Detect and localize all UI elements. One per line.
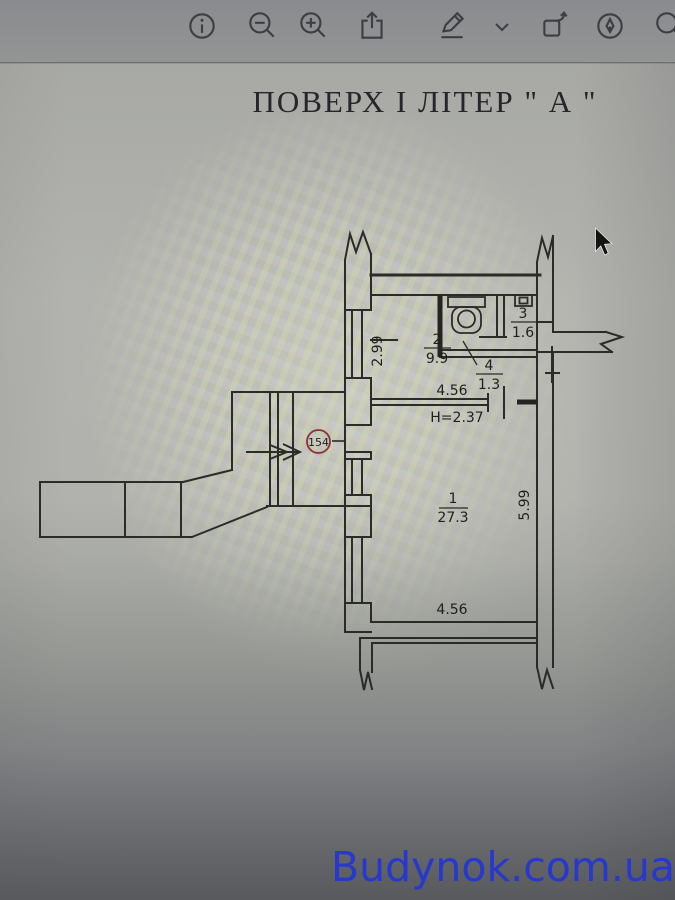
dim-upper-width: 4.56 xyxy=(436,383,467,399)
mouse-cursor-icon xyxy=(596,228,612,255)
room1-area: 27.3 xyxy=(437,510,468,526)
info-icon[interactable] xyxy=(185,9,219,43)
apartment-number: 154 xyxy=(308,436,329,449)
page-title: ПОВЕРХ І ЛІТЕР " А " xyxy=(252,84,597,119)
window-symbols xyxy=(352,310,362,603)
room2-number: 2 xyxy=(433,332,442,348)
preview-toolbar xyxy=(0,0,675,63)
zoom-out-icon[interactable] xyxy=(245,9,279,43)
search-icon[interactable] xyxy=(653,9,675,43)
wall-break-top-right xyxy=(537,236,553,262)
dim-lower-width: 4.56 xyxy=(436,602,467,618)
preview-window: { "app": { "toolbar": { "icons": [ {"nam… xyxy=(0,0,675,900)
rotate-icon[interactable] xyxy=(538,9,572,43)
markup-pencil-icon[interactable] xyxy=(435,9,469,43)
dim-left-wall: 2.99 xyxy=(370,335,386,366)
room4-leader-line xyxy=(463,341,477,365)
floor-plan: ПОВЕРХ І ЛІТЕР " А " xyxy=(0,0,675,900)
room4-number: 4 xyxy=(485,358,494,374)
room1-number: 1 xyxy=(449,491,458,507)
share-icon[interactable] xyxy=(355,9,389,43)
entrance-arrow xyxy=(246,444,300,460)
dim-right-wall: 5.99 xyxy=(517,489,533,520)
watermark: Budynok.com.ua xyxy=(331,845,675,890)
wall-break-top-left xyxy=(345,232,371,260)
zoom-in-icon[interactable] xyxy=(296,9,330,43)
vestibule-and-stairs xyxy=(40,392,371,537)
highlight-icon[interactable] xyxy=(593,9,627,43)
room3-number: 3 xyxy=(519,306,528,322)
wall-break-right xyxy=(537,322,622,352)
toilet-tank xyxy=(448,297,485,307)
markup-expand-chevron-icon[interactable] xyxy=(487,9,521,43)
room4-area: 1.3 xyxy=(478,377,500,393)
room2-area: 9.9 xyxy=(426,351,448,367)
wall-break-bottom-right xyxy=(537,667,553,689)
wall-break-bottom-left xyxy=(360,670,372,690)
dimension-labels: 4.56 H=2.37 4.56 2.99 5.99 xyxy=(370,335,533,618)
ceiling-height-label: H=2.37 xyxy=(430,410,483,426)
room3-area: 1.6 xyxy=(512,325,534,341)
plan-walls xyxy=(40,232,622,690)
apartment-number-badge: 154 xyxy=(307,430,345,453)
